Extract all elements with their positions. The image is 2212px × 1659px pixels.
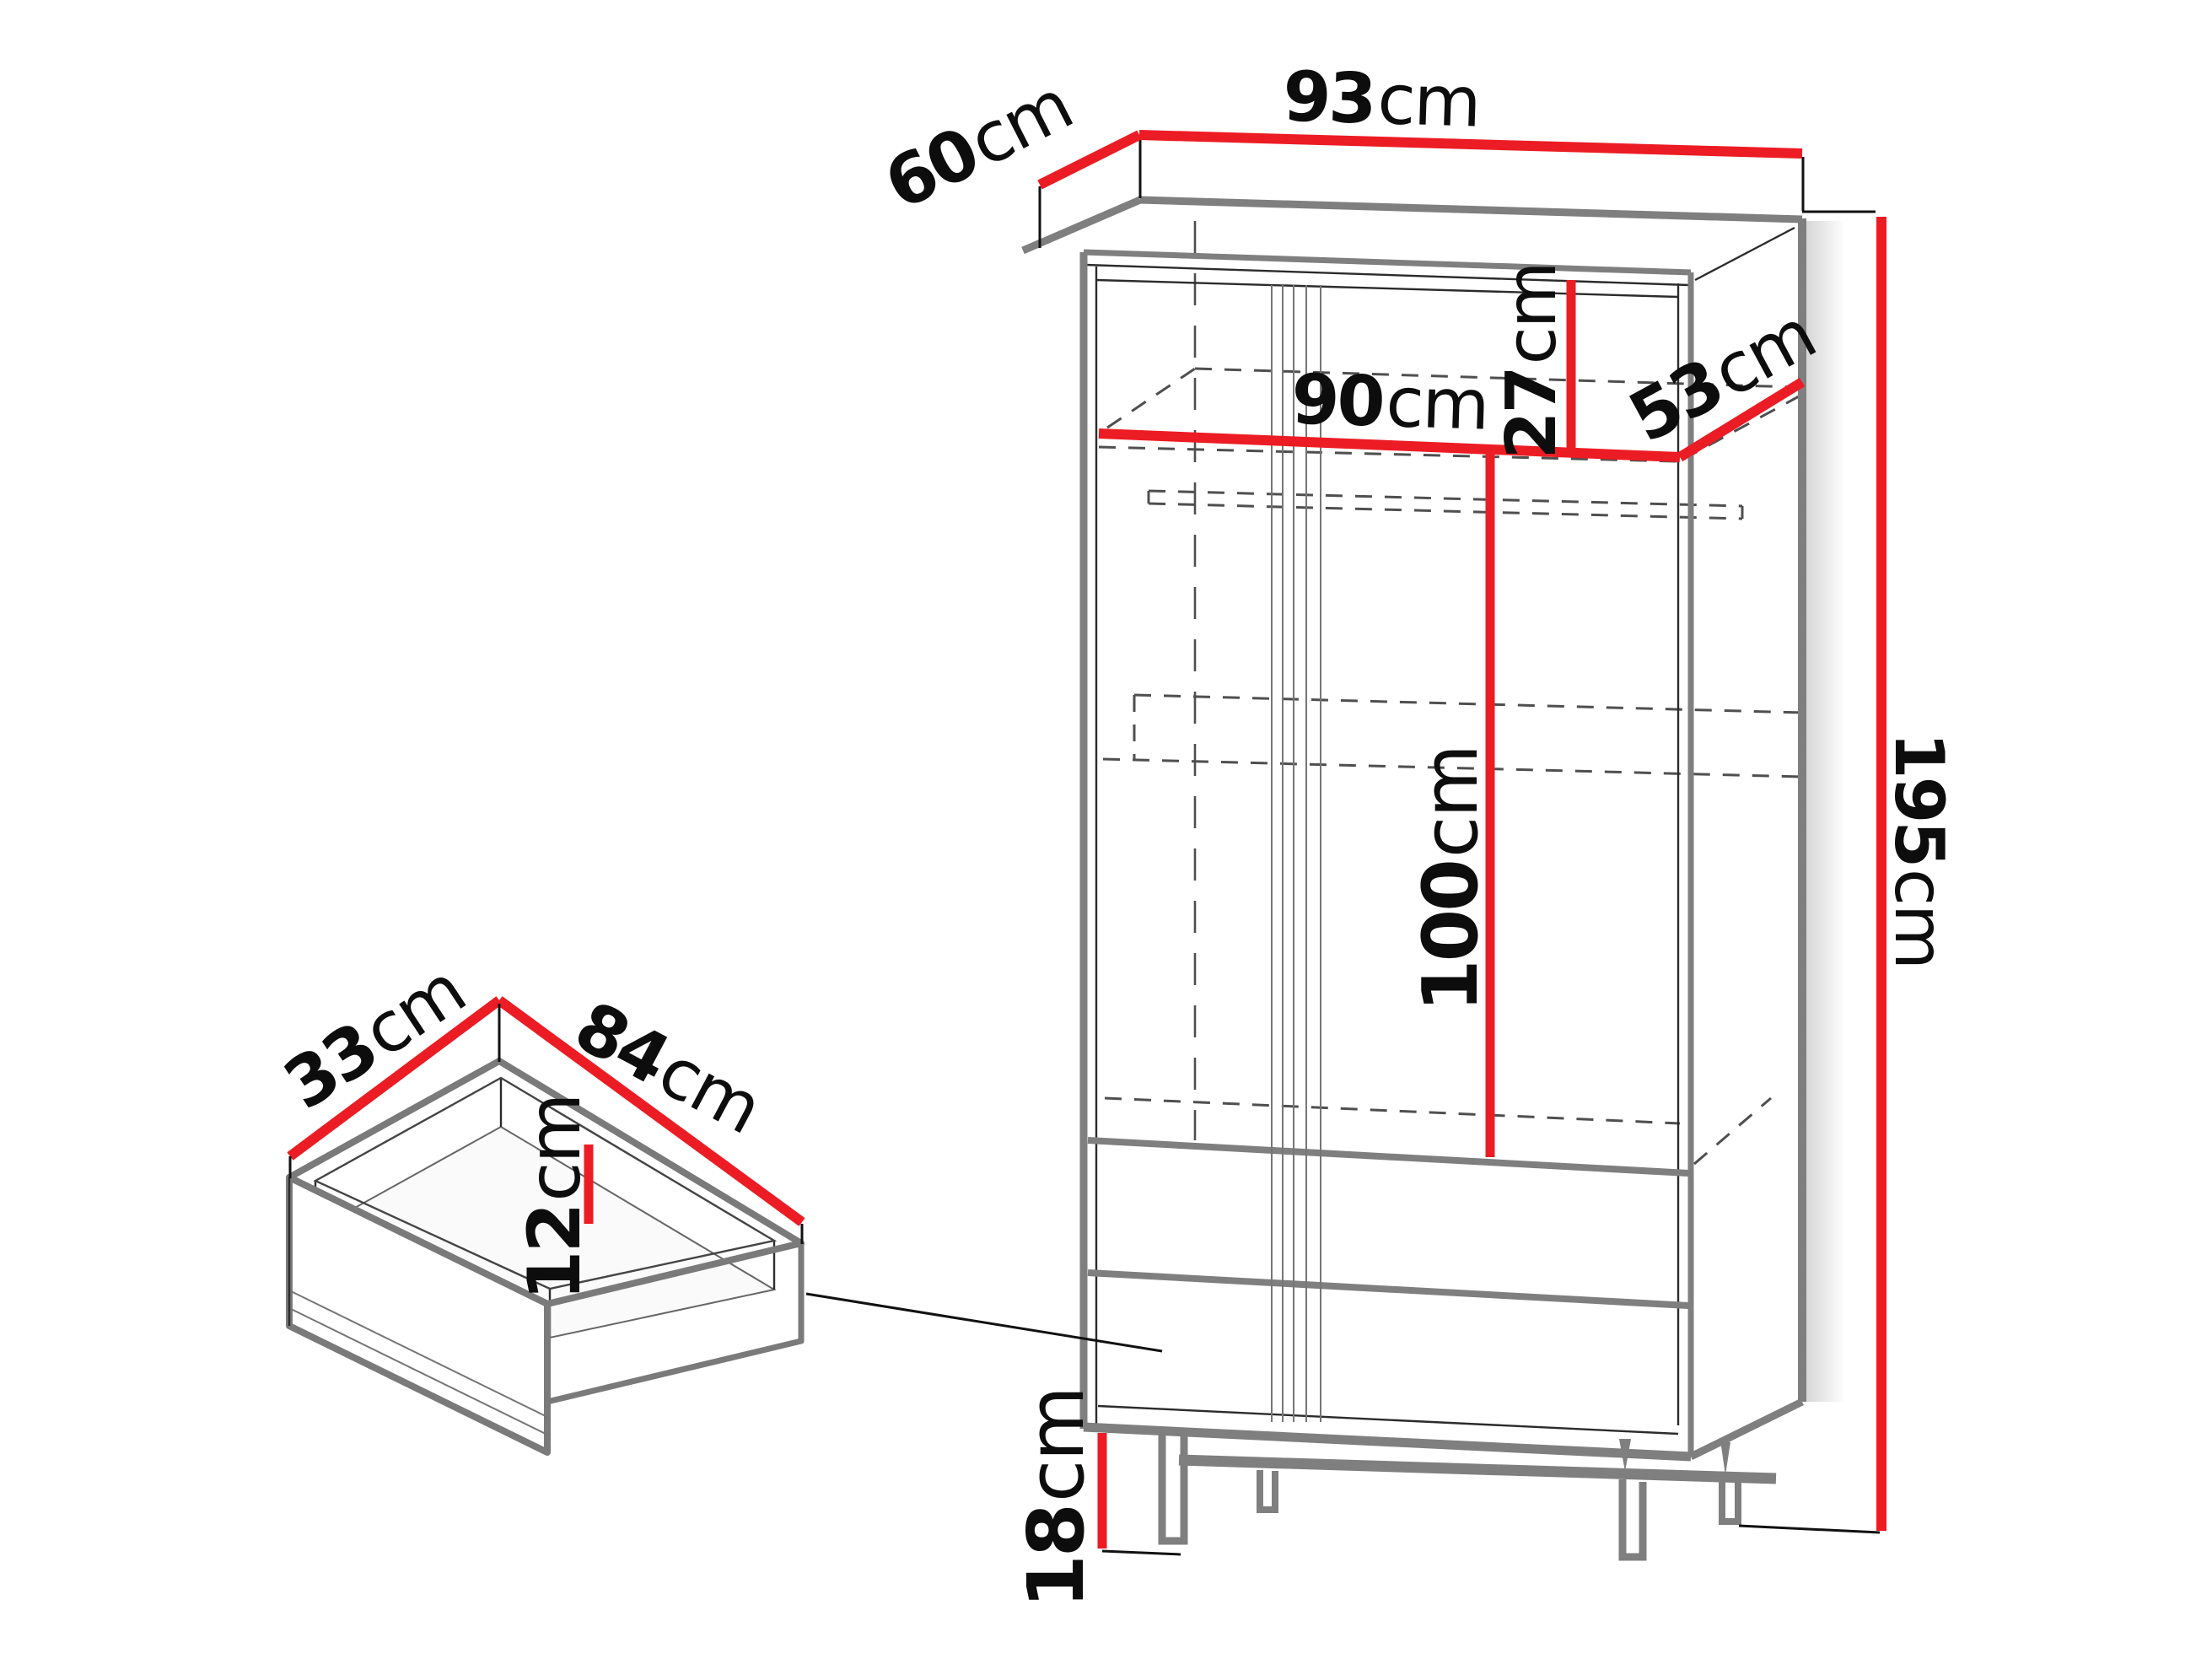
rear-left-leg xyxy=(1260,1470,1275,1510)
extension-line xyxy=(1739,1526,1880,1532)
label-legs-height: 18cm xyxy=(1011,1387,1101,1608)
extension-line xyxy=(1102,1551,1181,1554)
front-left-leg xyxy=(1162,1432,1184,1541)
label-hanging-height: 100cm xyxy=(1407,746,1495,1012)
base-rail xyxy=(1179,1460,1776,1479)
label-drawer-height: 12cm xyxy=(513,1095,597,1301)
furniture-dimension-diagram: 60cm 93cm 53cm 90cm 27cm 100cm 195cm 18c… xyxy=(0,0,2212,1659)
label-total-height: 195cm xyxy=(1881,732,1959,968)
right-shadow xyxy=(1806,221,1845,1402)
label-width: 93cm xyxy=(1282,57,1481,143)
leg-mount-spike xyxy=(1720,1441,1730,1475)
label-interior-width: 90cm xyxy=(1290,359,1489,445)
diagram-canvas: 60cm 93cm 53cm 90cm 27cm 100cm 195cm 18c… xyxy=(0,0,2212,1659)
label-depth: 60cm xyxy=(873,65,1084,225)
label-top-compartment: 27cm xyxy=(1492,262,1572,459)
front-right-leg xyxy=(1623,1479,1643,1557)
rear-right-leg xyxy=(1722,1478,1738,1522)
